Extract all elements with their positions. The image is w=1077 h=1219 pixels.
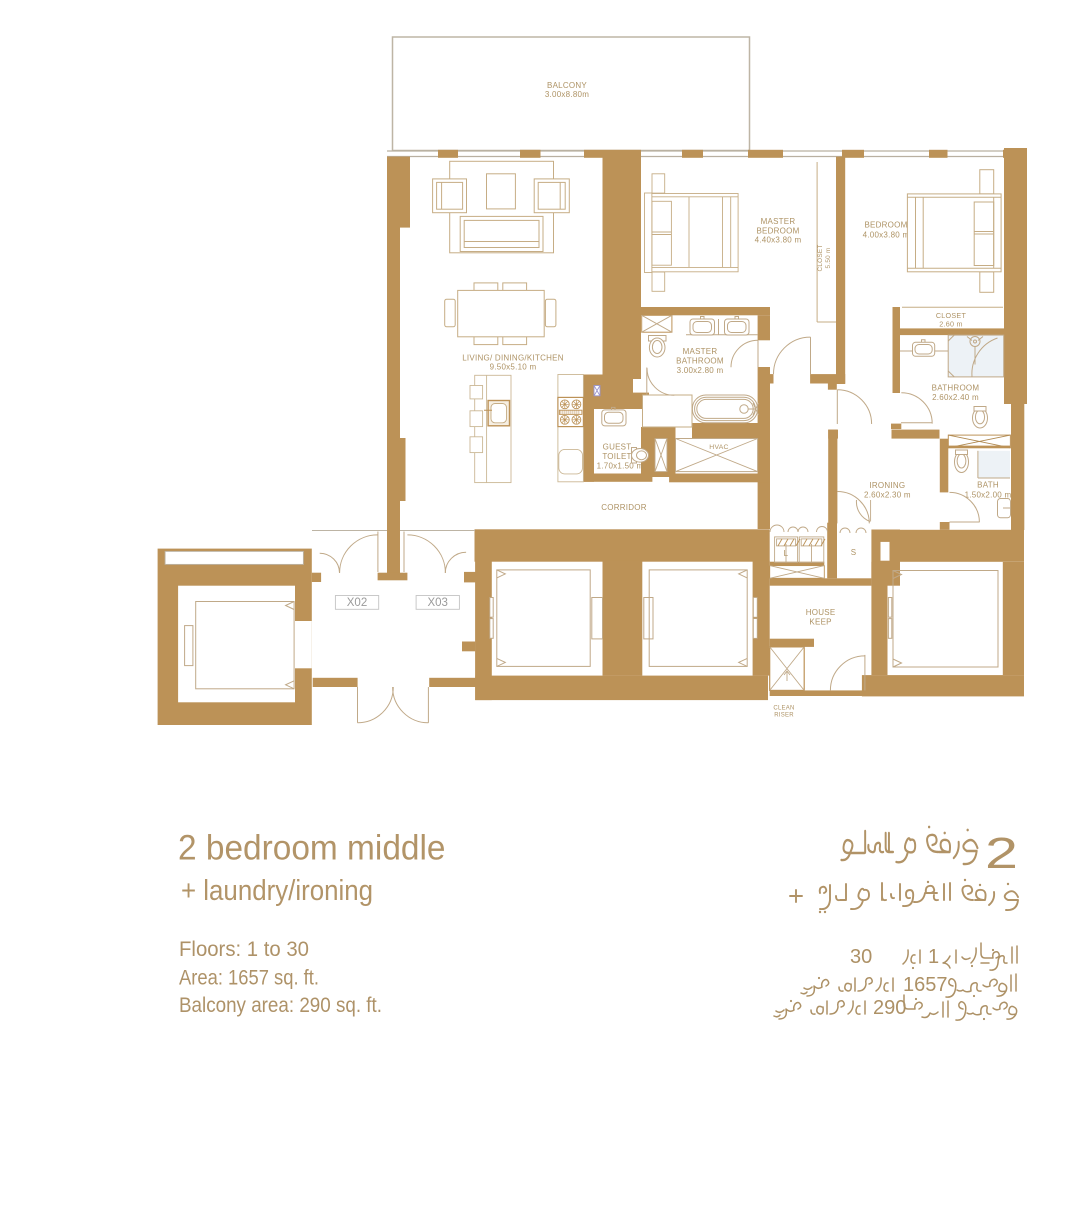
svg-text:2.60x2.30 m: 2.60x2.30 m bbox=[864, 491, 911, 500]
svg-text:3.00x2.80 m: 3.00x2.80 m bbox=[677, 366, 724, 375]
svg-text:2: 2 bbox=[985, 829, 1018, 878]
svg-text:GUEST: GUEST bbox=[603, 443, 632, 452]
svg-text:Balcony area: 290 sq. ft.: Balcony area: 290 sq. ft. bbox=[179, 993, 382, 1017]
svg-text:1657: 1657 bbox=[903, 974, 948, 996]
svg-text:LIVING/ DINING/KITCHEN: LIVING/ DINING/KITCHEN bbox=[462, 354, 564, 363]
svg-text:Floors: 1 to 30: Floors: 1 to 30 bbox=[179, 937, 309, 961]
svg-text:HOUSE: HOUSE bbox=[806, 608, 836, 617]
svg-text:2.60x2.40 m: 2.60x2.40 m bbox=[932, 393, 979, 402]
svg-text:BEDROOM: BEDROOM bbox=[864, 220, 907, 229]
svg-text:RISER: RISER bbox=[774, 713, 794, 719]
svg-text:CLOSET: CLOSET bbox=[817, 244, 824, 271]
svg-text:KEEP: KEEP bbox=[809, 618, 831, 627]
svg-text:2.60 m: 2.60 m bbox=[939, 320, 962, 329]
svg-text:290: 290 bbox=[873, 997, 906, 1019]
svg-text:CLEAN: CLEAN bbox=[773, 706, 794, 712]
svg-text:MASTER: MASTER bbox=[761, 217, 796, 226]
svg-text:BALCONY: BALCONY bbox=[547, 81, 587, 90]
svg-text:L: L bbox=[784, 549, 789, 558]
svg-text:4.00x3.80 m: 4.00x3.80 m bbox=[863, 231, 910, 240]
svg-text:+ laundry/ironing: + laundry/ironing bbox=[181, 875, 373, 907]
svg-text:MASTER: MASTER bbox=[683, 347, 718, 356]
svg-text:X02: X02 bbox=[347, 597, 367, 609]
svg-text:9.50x5.10 m: 9.50x5.10 m bbox=[490, 363, 537, 372]
svg-text:S: S bbox=[851, 548, 857, 557]
svg-text:2 bedroom middle: 2 bedroom middle bbox=[178, 828, 446, 868]
svg-text:BATH: BATH bbox=[977, 481, 999, 490]
svg-text:X03: X03 bbox=[427, 597, 447, 609]
svg-text:5.50 m: 5.50 m bbox=[825, 247, 832, 268]
svg-text:IRONING: IRONING bbox=[869, 481, 905, 490]
svg-text:3.00x8.80m: 3.00x8.80m bbox=[545, 90, 589, 99]
svg-text:TOILET: TOILET bbox=[602, 452, 631, 461]
svg-text:30: 30 bbox=[850, 946, 872, 968]
svg-text:Area: 1657 sq. ft.: Area: 1657 sq. ft. bbox=[179, 966, 319, 990]
svg-text:4.40x3.80 m: 4.40x3.80 m bbox=[755, 236, 802, 245]
svg-text:BEDROOM: BEDROOM bbox=[756, 226, 799, 235]
svg-text:HVAC: HVAC bbox=[709, 444, 728, 451]
svg-text:BATHROOM: BATHROOM bbox=[932, 384, 980, 393]
svg-text:BATHROOM: BATHROOM bbox=[676, 357, 724, 366]
svg-text:1: 1 bbox=[928, 946, 939, 968]
svg-text:CORRIDOR: CORRIDOR bbox=[601, 503, 647, 512]
